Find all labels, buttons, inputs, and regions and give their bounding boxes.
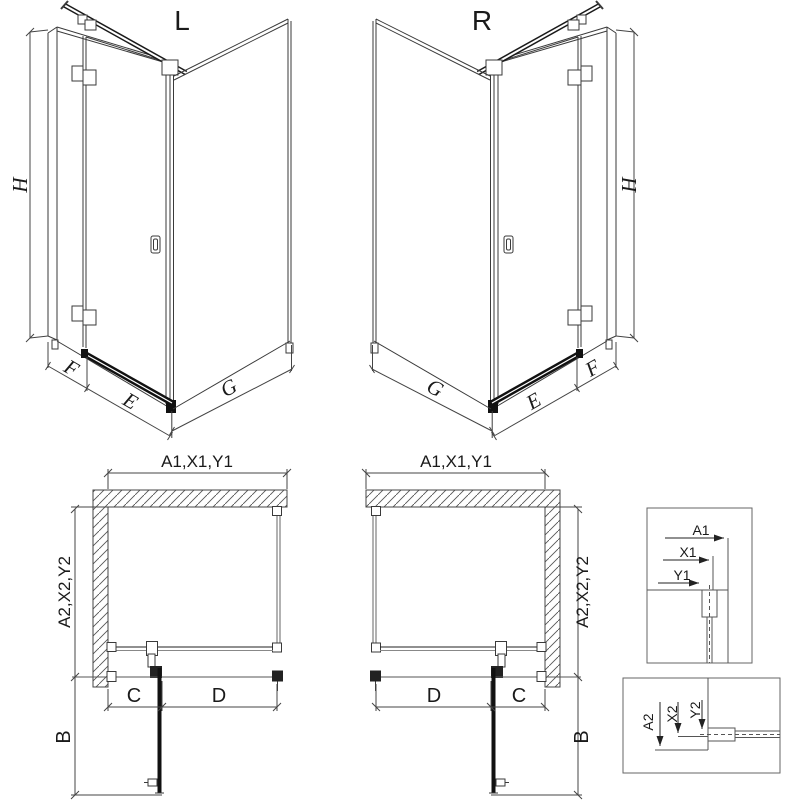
shower-enclosure-technical-drawing: L R H H F E G F E G A1,X1,Y1 A1,X1,Y1 A2… [0,0,800,800]
label-e-left: E [118,387,142,415]
label-right-view: R [472,5,492,36]
label-height-right: H [617,176,641,194]
wall-right-plan-top [366,490,560,507]
label-b-right: B [571,730,593,743]
diagram-svg: L R H H F E G F E G A1,X1,Y1 A1,X1,Y1 A2… [0,0,800,800]
label-detail-y2: Y2 [687,701,703,718]
plan-walls [93,490,560,687]
label-b-left: B [53,730,75,743]
label-d-right: D [427,685,441,707]
label-c-right: C [512,685,526,707]
label-left-view: L [174,5,190,36]
label-detail-y1: Y1 [673,567,690,583]
wall-right-plan-side [545,507,560,687]
wall-left-plan-top [93,490,287,507]
wall-left-plan-side [93,507,108,687]
label-detail-x1: X1 [679,544,696,560]
label-a1x1y1-left: A1,X1,Y1 [161,452,233,471]
label-a1x1y1-right: A1,X1,Y1 [420,452,492,471]
label-height-left: H [8,176,32,194]
label-e-right: E [521,387,545,415]
label-f-right: F [580,354,604,382]
label-detail-a2: A2 [640,713,656,730]
label-c-left: C [127,685,141,707]
label-a2x2y2-left: A2,X2,Y2 [55,556,74,628]
label-detail-x2: X2 [664,705,680,722]
label-detail-a1: A1 [692,522,709,538]
label-a2x2y2-right: A2,X2,Y2 [573,556,592,628]
label-d-left: D [212,685,226,707]
label-f-left: F [59,354,83,382]
